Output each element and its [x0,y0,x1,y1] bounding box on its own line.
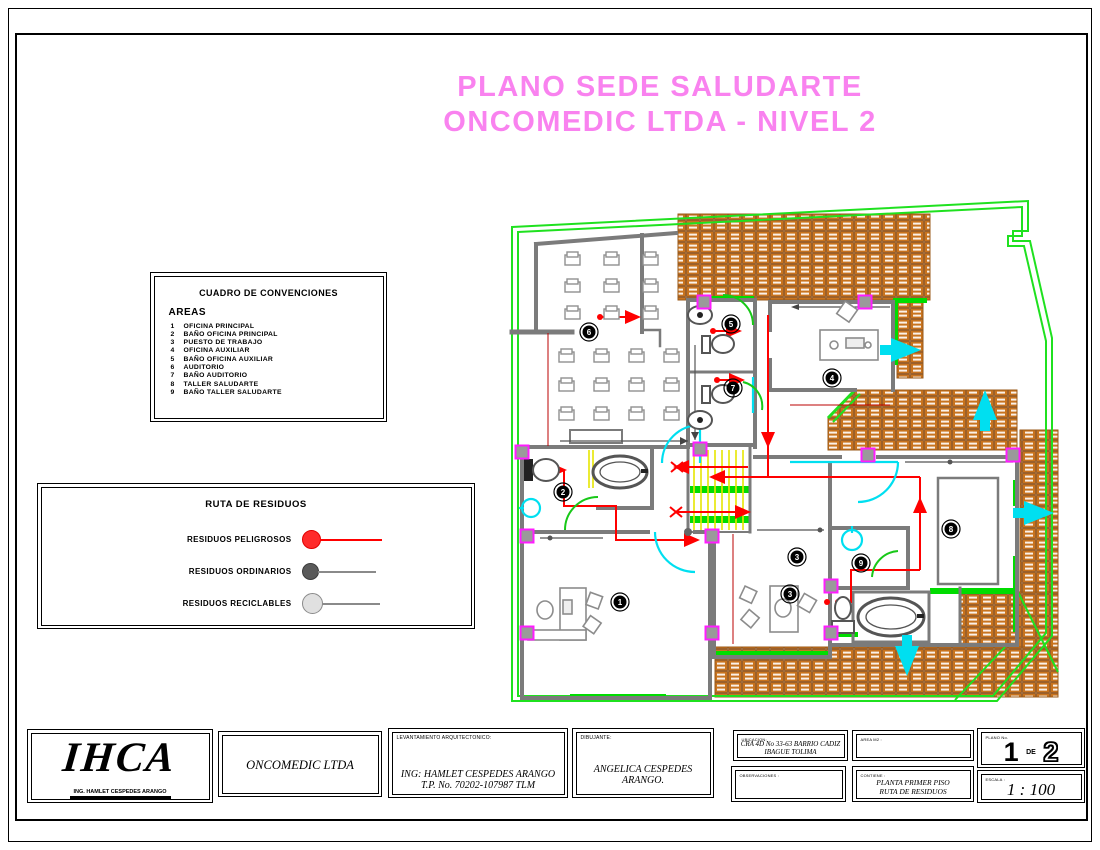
convention-item: 7BAÑO AUDITORIO [171,372,373,380]
svg-text:7: 7 [731,384,736,393]
company-logo: IHCA [61,736,179,780]
waste-route-legend-inner: RUTA DE RESIDUOS RESIDUOS PELIGROSOSRESI… [41,487,472,626]
convention-item: 4OFICINA AUXILIAR [171,347,373,355]
waste-legend-rows: RESIDUOS PELIGROSOSRESIDUOS ORDINARIOSRE… [42,524,471,620]
convention-item: 2BAÑO OFICINA PRINCIPAL [171,331,373,339]
location-box-inner: UBICACION: CRA 4D No 33-63 BARRIO CADIZ … [737,734,845,758]
svg-text:3: 3 [788,590,793,599]
convention-item: 5BAÑO OFICINA AUXILIAR [171,356,373,364]
waste-route-legend: RUTA DE RESIDUOS RESIDUOS PELIGROSOSRESI… [37,483,475,629]
floor-plan-drawing: 1233456789 [0,0,1100,850]
contains-line2: RUTA DE RESIDUOS [857,787,970,796]
waste-legend-title: RUTA DE RESIDUOS [42,499,471,510]
surveyor-header: LEVANTAMIENTO ARQUITECTONICO: [397,735,492,741]
surveyor-license: T.P. No. 70202-107987 TLM [393,780,564,791]
location-line1: CRA 4D No 33-63 BARRIO CADIZ [738,740,844,748]
conventions-title: CUADRO DE CONVENCIONES [155,288,383,298]
svg-text:3: 3 [795,553,800,562]
notes-header: OBSERVACIONES : [740,773,780,778]
sheet-number-box: PLANO No. 1 DE 2 [977,728,1085,768]
svg-text:5: 5 [729,320,734,329]
svg-text:9: 9 [859,559,864,568]
convention-item: 8TALLER SALUDARTE [171,381,373,389]
location-line2: IBAGUE TOLIMA [738,748,844,756]
scale-box-inner: ESCALA : 1 : 100 [981,774,1082,800]
conventions-legend-inner: CUADRO DE CONVENCIONES AREAS 1OFICINA PR… [154,276,384,419]
surveyor-box: LEVANTAMIENTO ARQUITECTONICO: ING: HAMLE… [388,728,568,798]
contains-box: CONTIENE : PLANTA PRIMER PISO RUTA DE RE… [852,766,974,802]
convention-item: 3PUESTO DE TRABAJO [171,339,373,347]
sheet-separator: DE [1026,749,1036,756]
area-header: AREA M2 : [861,737,882,742]
waste-legend-item: RESIDUOS ORDINARIOS [42,556,471,588]
waste-dot-icon [302,530,321,549]
draftsperson-box: DIBUJANTE: ANGELICA CESPEDES ARANGO. [572,728,714,798]
waste-legend-item: RESIDUOS PELIGROSOS [42,524,471,556]
surveyor-name: ING: HAMLET CESPEDES ARANGO [393,769,564,780]
notes-box: OBSERVACIONES : [731,766,846,802]
svg-text:8: 8 [949,525,954,534]
convention-item: 1OFICINA PRINCIPAL [171,323,373,331]
svg-text:1: 1 [618,598,623,607]
convention-item: 9BAÑO TALLER SALUDARTE [171,389,373,397]
waste-dot-icon [302,563,319,580]
svg-text:6: 6 [587,328,592,337]
notes-box-inner: OBSERVACIONES : [735,770,843,799]
logo-box-inner: IHCA ING. HAMLET CESPEDES ARANGO [31,733,210,800]
sheet-total: 2 [1043,737,1058,767]
client-name: ONCOMEDIC LTDA [223,758,378,773]
svg-text:2: 2 [561,488,566,497]
draftsperson-name: ANGELICA CESPEDES ARANGO. [577,764,710,786]
sheet-number-box-inner: PLANO No. 1 DE 2 [981,732,1082,765]
waste-legend-item: RESIDUOS RECICLABLES [42,588,471,620]
contains-line1: PLANTA PRIMER PISO [857,778,970,787]
scale-box: ESCALA : 1 : 100 [977,770,1085,803]
client-box: ONCOMEDIC LTDA [218,731,382,797]
contains-box-inner: CONTIENE : PLANTA PRIMER PISO RUTA DE RE… [856,770,971,799]
waste-dot-icon [302,593,323,614]
location-box: UBICACION: CRA 4D No 33-63 BARRIO CADIZ … [733,730,848,761]
draftsperson-header: DIBUJANTE: [581,735,612,741]
conventions-subtitle: AREAS [169,307,383,318]
conventions-legend: CUADRO DE CONVENCIONES AREAS 1OFICINA PR… [150,272,387,422]
conventions-list: 1OFICINA PRINCIPAL2BAÑO OFICINA PRINCIPA… [171,323,373,398]
logo-box: IHCA ING. HAMLET CESPEDES ARANGO [27,729,213,803]
svg-text:4: 4 [830,374,835,383]
scale-value: 1 : 100 [982,780,1081,800]
sheet-current: 1 [1004,737,1019,767]
area-box-inner: AREA M2 : [856,734,971,758]
draftsperson-box-inner: DIBUJANTE: ANGELICA CESPEDES ARANGO. [576,732,711,795]
drawing-sheet: PLANO SEDE SALUDARTE ONCOMEDIC LTDA - NI… [0,0,1100,850]
surveyor-box-inner: LEVANTAMIENTO ARQUITECTONICO: ING: HAMLE… [392,732,565,795]
area-box: AREA M2 : [852,730,974,761]
client-box-inner: ONCOMEDIC LTDA [222,735,379,794]
company-logo-subtext: ING. HAMLET CESPEDES ARANGO [70,789,171,799]
